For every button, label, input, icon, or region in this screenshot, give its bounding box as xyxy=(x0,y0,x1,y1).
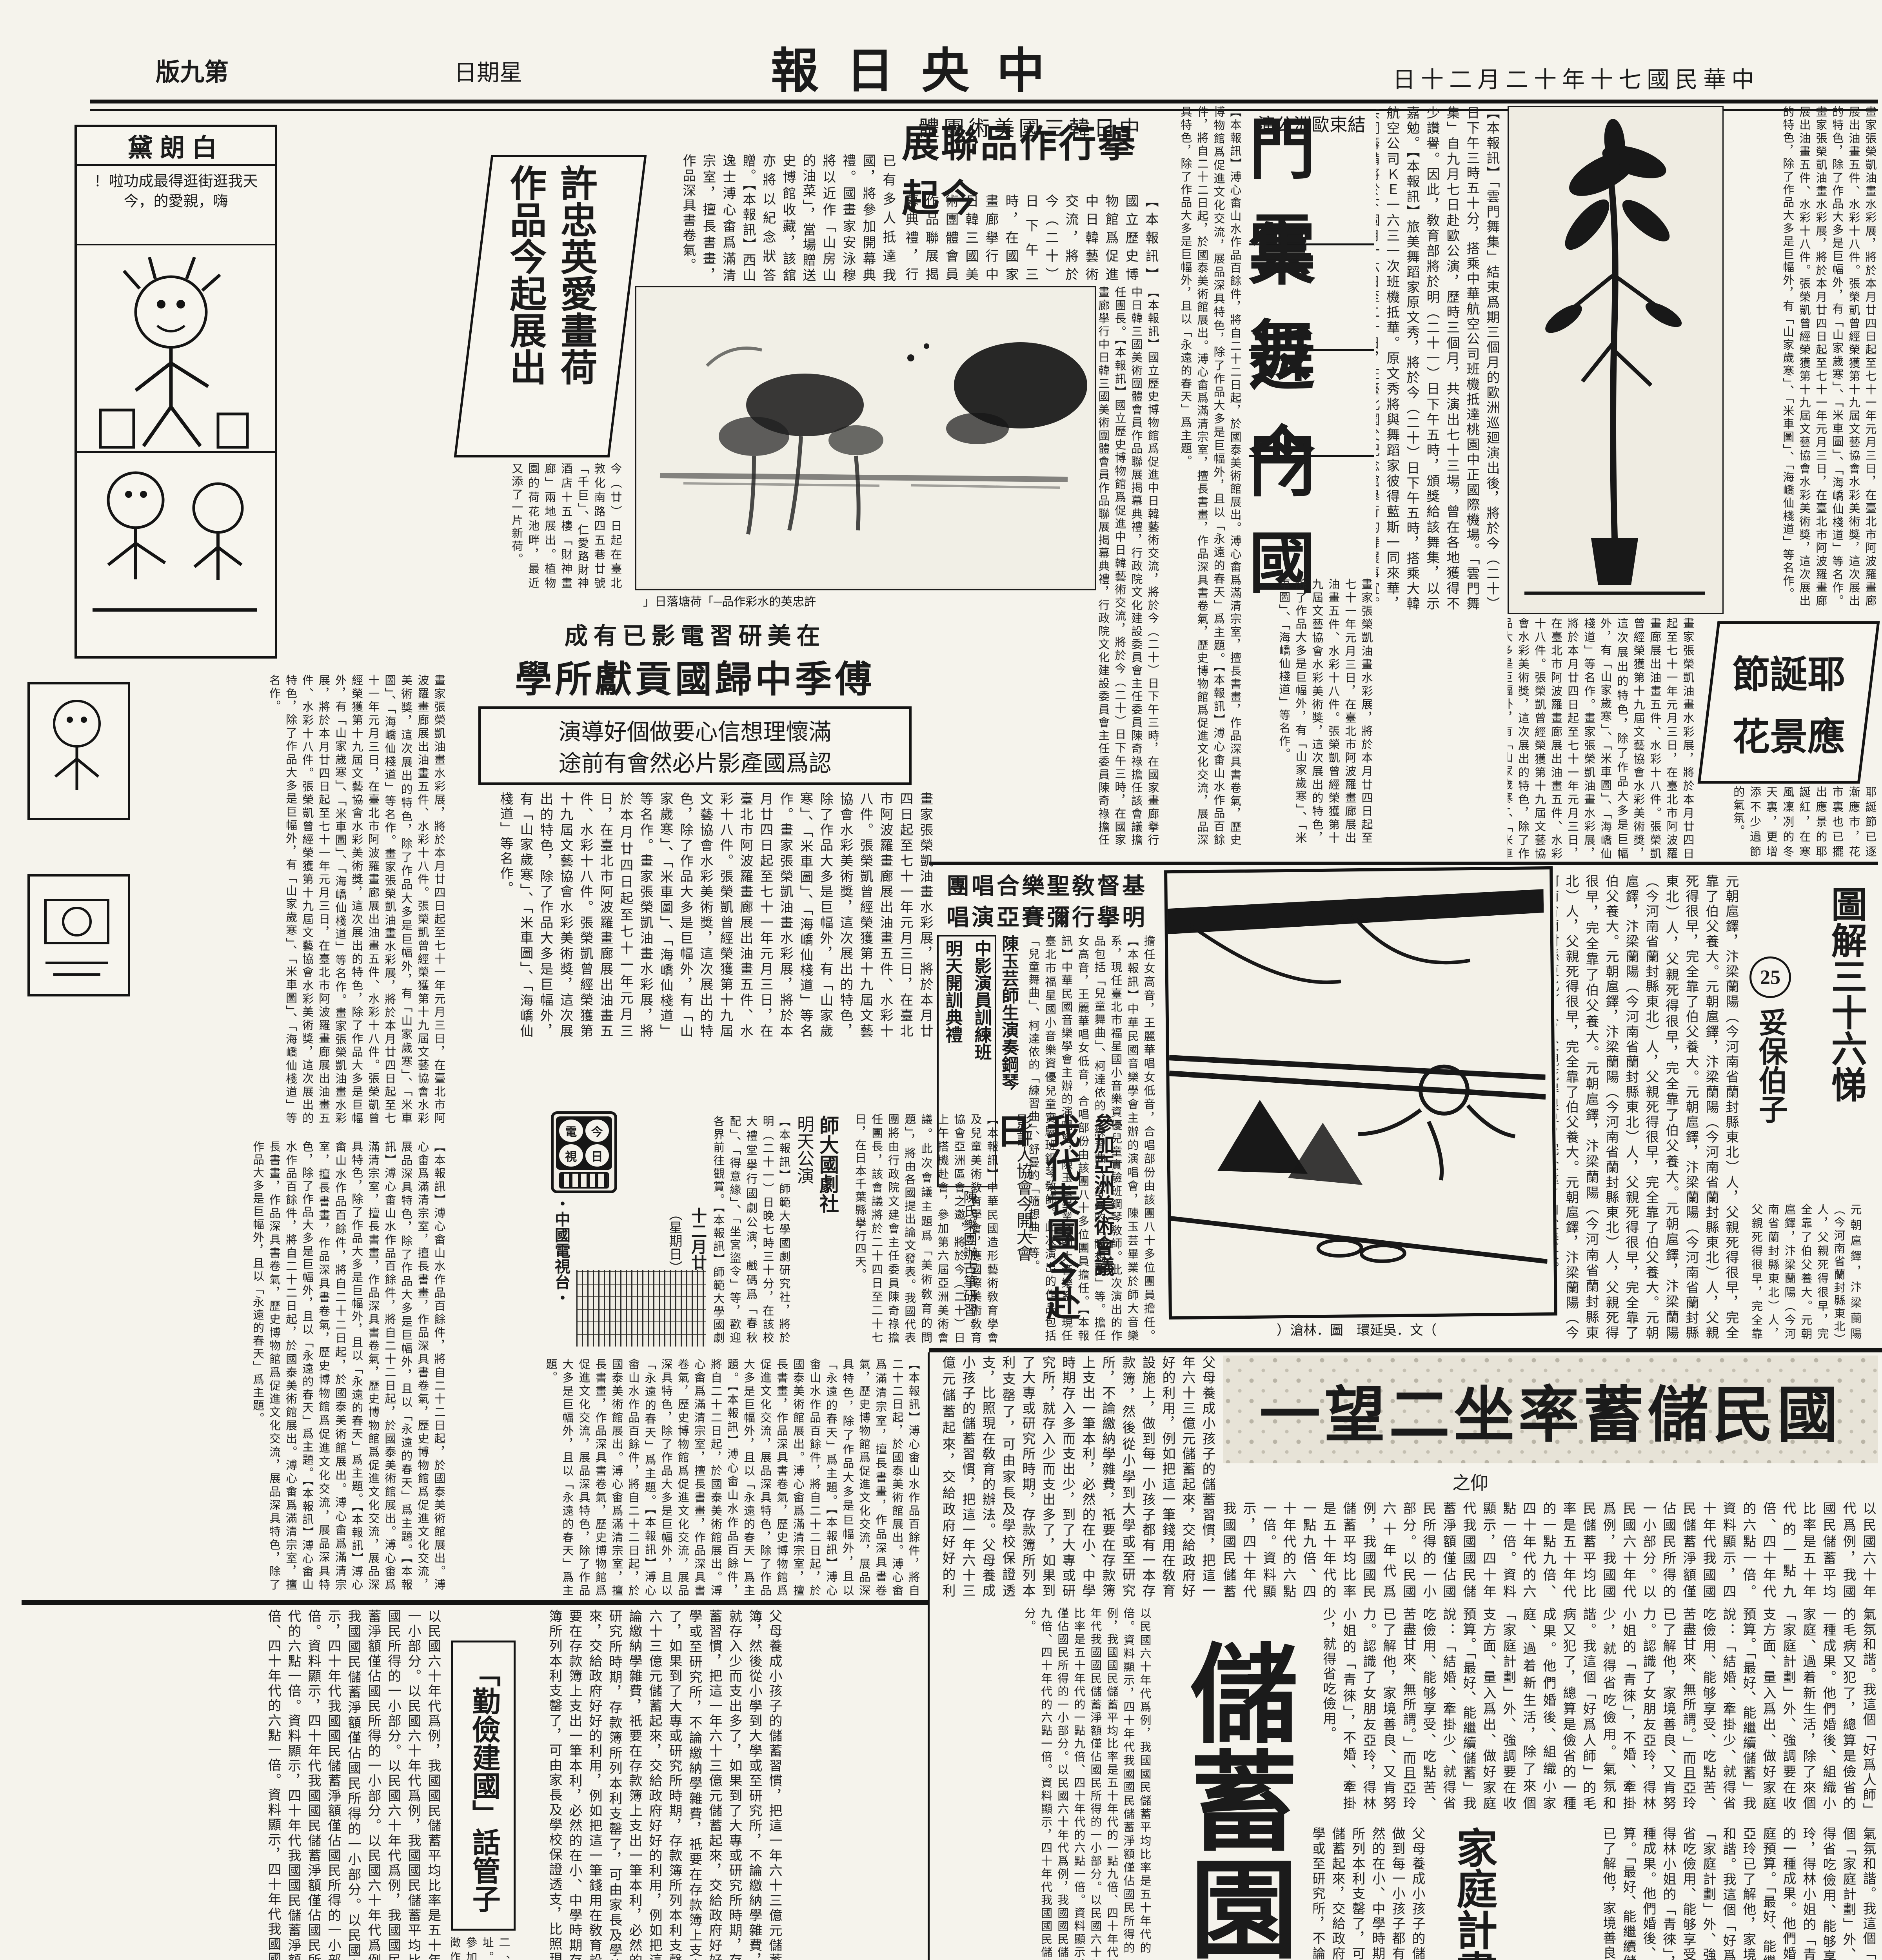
newspaper-page: 版九第 日期星 報日央中 日十二月二十年十七國民華中 黛朗白 ！啦功成最得逛街逛… xyxy=(0,0,1882,1960)
date-line: 日十二月二十年十七國民華中 xyxy=(1286,59,1866,96)
under-photo-column: 畫家張榮凱油畫水彩展，將於本月廿四日起至七十一年元月三日，在臺北市阿波羅畫廊展出… xyxy=(1508,617,1696,860)
artmeet-subhead: 影評人協會今開大會 xyxy=(1004,1113,1035,1333)
tv-guide-logo: 電 今 視 日 xyxy=(551,1111,617,1193)
comic-title: 黛朗白 xyxy=(77,127,275,166)
family-top-columns: 氣氛和諧。我這個「好爲人師」的毛病又犯了，總算是儉省的一種成果。他們婚後、組織小… xyxy=(1313,1607,1878,1811)
guanzi-list-column: 二、收件地址。三、每份參加。四、應徵作品。五、入選名單。自即日起至七十一年一月三… xyxy=(451,1936,512,1960)
cloudgate-title: 門雲 集舞 返今 門國 xyxy=(1249,140,1374,571)
savings-section-rule xyxy=(929,1348,1882,1352)
film-subhead-1: 演導好個做要心信想理懷滿 xyxy=(485,714,905,746)
film-kicker: 成有已影電習研美在 xyxy=(455,617,935,651)
savings-body-b: 以民國六十年代爲例，我國國民儲蓄平均比率是五十年代的一點九倍、四十年代的六點一倍… xyxy=(1223,1501,1878,1599)
exhibit-title: 展聯品作行擧起今 xyxy=(902,141,1161,194)
tv-speaker-grille xyxy=(559,1172,609,1189)
left-section-rule xyxy=(22,1600,929,1605)
masthead-title: 報日央中 xyxy=(729,35,1114,98)
tujie-series-title: 圖解三十六悌 xyxy=(1808,886,1866,1172)
tujie-body: 元朝扈鐸，汴梁蘭陽（今河南省蘭封縣東北）人，父親死得很早，完全靠了伯父養大。元朝… xyxy=(1557,874,1741,1341)
family-body-left: 父母養成小孩子的儲蓄習慣，把這一年六十三億元儲蓄起來，交給政府好好的利用，例如把… xyxy=(1313,1827,1427,1960)
header-rule-top xyxy=(90,100,1878,103)
savings-body-a: 父母養成小孩子的儲蓄習慣，把這一年六十三億元儲蓄起來，交給政府好好的利用，例如把… xyxy=(935,1356,1217,1599)
comic-panel-2 xyxy=(77,453,270,622)
music-headline-2: 唱演亞賽彌行擧明 xyxy=(937,900,1157,931)
tv-program-listing xyxy=(576,1270,706,1347)
comic-strip: 黛朗白 ！啦功成最得逛街逛我天今，的愛親，嗨 xyxy=(74,125,277,659)
lotus-painting-caption: 」日落塘荷「─品作彩水的英忠許 xyxy=(643,592,996,613)
guanzi-title-box: 「勤儉建國」話管子 xyxy=(451,1641,516,1931)
tujie-episode: 25 妥保伯子 xyxy=(1749,956,1804,1188)
cloudgate-body-3: 畫家張榮凱油畫水彩展，將於本月廿四日起至七十一年元月三日，在臺北市阿波羅畫廊展出… xyxy=(1249,578,1374,845)
savings-headline-band: 一望二坐率蓄儲民國 xyxy=(1223,1356,1878,1463)
garden-masthead: 儲蓄園地 xyxy=(1159,1607,1308,1960)
xmas-title-line2: 花景應 xyxy=(1710,706,1867,761)
left-half-bottom-columns: 【本報訊】溥心畬山水作品百餘件，將自二十二日起，於國泰美術館展出。溥心畬爲滿清宗… xyxy=(24,1358,921,1597)
film-title: 學所獻貢國歸中季傅 xyxy=(455,651,935,702)
xu-venue-note: 今（廿）日起在臺北敦化南路四五巷廿號「千巨」、仁愛路財神酒店十五樓「財神畫廊」兩… xyxy=(472,463,623,590)
film-study-block: 成有已影電習研美在 學所獻貢國歸中季傅 演導好個做要心信想理懷滿 途前有會然必片… xyxy=(455,617,935,1109)
xu-headline-line1: 許忠英愛畫荷 xyxy=(555,164,595,462)
guanzi-title: 「勤儉建國」話管子 xyxy=(453,1642,514,1929)
tujie-credit: ）滄林．圖 環延吳．文（ xyxy=(1172,1317,1541,1341)
arts-notes-column: 畫家張榮凱油畫水彩展，將於本月廿四日起至七十一年元月三日，在臺北市阿波羅畫廊展出… xyxy=(1725,106,1878,608)
xmas-title-box: 節誕耶 花景應 xyxy=(1698,621,1880,784)
cloudgate-body: 【本報訊】「雲門舞集」結束爲期三個月的歐洲巡廻演出後，將於今（二十）日下午三時五… xyxy=(1376,106,1502,612)
christmas-plant-photo xyxy=(1508,106,1724,614)
xu-headline-line2: 作品今起展出 xyxy=(504,164,545,462)
opera-headline: 師大國劇社 xyxy=(817,1115,842,1272)
garden-title: 儲蓄園地 xyxy=(1159,1607,1308,1960)
tujie-episode-number: 25 xyxy=(1749,956,1791,998)
artmeet-body: 【本報訊】中華民國造形藝術敎育學會及兒童美術敎育學會，應國際美術敎育協會亞洲區會… xyxy=(845,1113,1000,1345)
savings-headline: 一望二坐率蓄儲民國 xyxy=(1260,1365,1842,1454)
xmas-title-line1: 節誕耶 xyxy=(1710,644,1867,699)
tv-station-name: ・中國電視台・ xyxy=(548,1196,572,1345)
tv-logo-char-2: 今 xyxy=(585,1120,609,1142)
music-headline-1: 團唱合樂聖敎督基 xyxy=(937,868,1157,900)
vertical-divider xyxy=(928,1352,930,1960)
film-subhead-2: 途前有會然必片影產國爲認 xyxy=(485,746,905,777)
cloudgate-body-2: 【本報訊】溥心畬山水作品百餘件，將自二十二日起，於國泰美術館展出。溥心畬爲滿清宗… xyxy=(1164,106,1243,847)
sidebar-cartoon-1 xyxy=(27,682,130,820)
lotus-painting-photo xyxy=(635,286,1096,590)
film-body: 畫家張榮凱油畫水彩展，將於本月廿四日起至七十一年元月三日，在臺北市阿波羅畫廊展出… xyxy=(455,792,935,1039)
tv-logo-char-4: 日 xyxy=(585,1144,609,1167)
guanzi-body-right: 父母養成小孩子的儲蓄習慣，把這一年六十三億元儲蓄起來，交給政府好好的利用，例如把… xyxy=(518,1609,784,1960)
tujie-episode-title: 妥保伯子 xyxy=(1749,1007,1791,1180)
savings-byline: 之仰 xyxy=(1419,1468,1521,1495)
exhibit-headline-block: 體團術美國三韓日中 展聯品作行擧起今 【本報訊】國立歷史博物館爲促進中日韓藝術交… xyxy=(902,112,1161,286)
family-title: 家庭計畫經濟 xyxy=(1435,1827,1496,1960)
exhibit-lead: 【本報訊】國立歷史博物館爲促進中日韓藝術交流，將於今（二十）日下午三時，在國家畫… xyxy=(902,194,1161,282)
garden-left-columns: 以民國六十年代爲例，我國國民儲蓄平均比率是五十年代的一點九倍、四十年代的六點一倍… xyxy=(935,1607,1153,1960)
left-rail-text-a: 畫家張榮凱油畫水彩展，將於本月廿四日起至七十一年元月三日，在臺北市阿波羅畫廊展出… xyxy=(133,674,447,1125)
comic-speech-bubble: ！啦功成最得逛街逛我天今，的愛親，嗨 xyxy=(77,166,275,245)
cloudgate-title-row4: 門國 xyxy=(1249,457,1374,561)
tujie-illustration xyxy=(1164,866,1557,1319)
weekday-label: 日期星 xyxy=(423,53,553,88)
exhibit-body-a: 已有多人抵達我國，將參加開幕典禮。國畫家安泳穆將以近作「山房山的油菜」，當場贈送… xyxy=(635,154,898,283)
comic-panel-1 xyxy=(77,245,270,449)
tv-logo-char-1: 電 xyxy=(559,1120,583,1142)
family-body-right: 氣氛和諧。我這個「好爲人師」的毛病又犯了，總算是儉省的一種成果。他們婚後、組織小… xyxy=(1502,1827,1878,1960)
xu-headline-box: 許忠英愛畫荷 作品今起展出 xyxy=(454,155,647,457)
film-subhead-box: 演導好個做要心信想理懷滿 途前有會然必片影產國爲認 xyxy=(478,706,912,785)
guanzi-body-left: 以民國六十年代爲例，我國國民儲蓄平均比率是五十年代的一點九倍、四十年代的六點一倍… xyxy=(27,1609,443,1960)
artmeet-kicker: 參加亞洲美術會議 xyxy=(1089,1113,1117,1333)
sidebar-cartoon-2 xyxy=(27,874,130,996)
page-number: 版九第 xyxy=(118,51,267,88)
opera-body: 【本報訊】師範大學國劇研究社，將於明（二十一）日晚七時三十分，在該校大禮堂擧行國… xyxy=(712,1115,792,1345)
tv-logo-char-3: 視 xyxy=(559,1144,583,1167)
mid-section-rule xyxy=(929,862,1878,865)
xmas-caption: 耶誕節已逐漸應市，花市裏也已擺出應景的耶誕紅，在寒風凜冽的冬天裏，更增添不少過節… xyxy=(1700,786,1878,858)
artmeet-title: 我代表團今赴日 xyxy=(1040,1113,1085,1341)
tujie-body-2: 元朝扈鐸，汴梁蘭陽（今河南省蘭封縣東北）人，父親死得很早，完全靠了伯父養大。元朝… xyxy=(1749,1203,1863,1341)
exhibit-body-b: 【本報訊】國立歷史博物館爲促進中日韓藝術交流，將於今（二十）日下午三時，在國家畫… xyxy=(1098,286,1161,847)
opera-subhead: 明天公演 xyxy=(795,1115,816,1272)
